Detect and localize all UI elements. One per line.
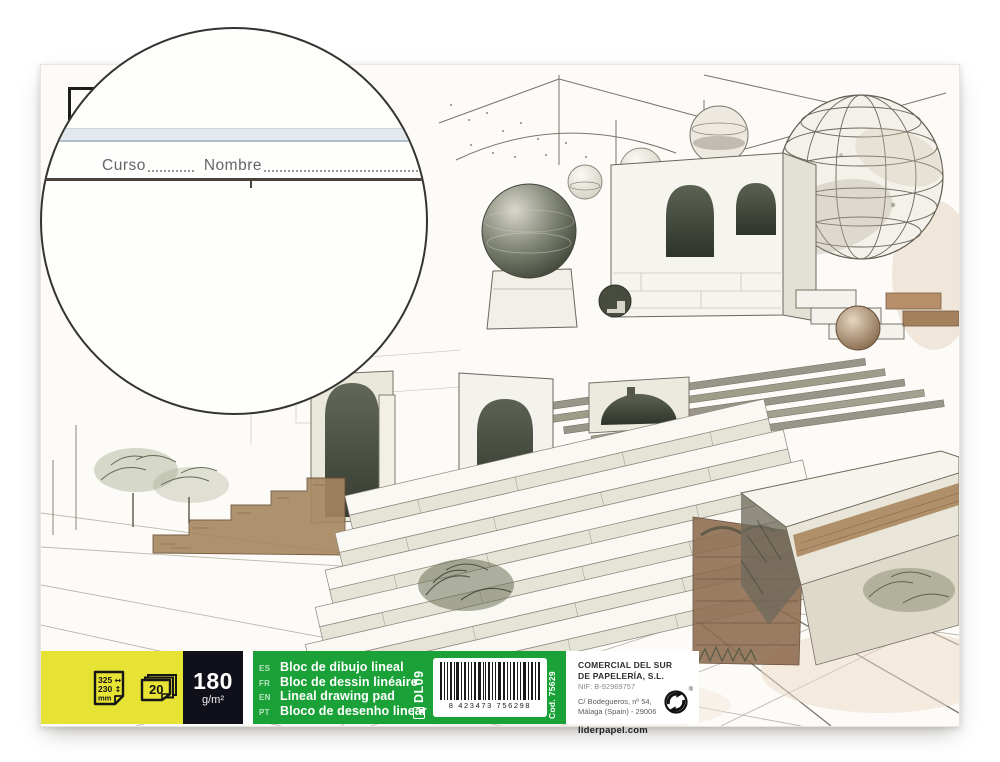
language-label: Bloc de dessin linéaire	[280, 675, 418, 689]
svg-text:20: 20	[149, 682, 163, 697]
language-row-es: ES Bloc de dibujo lineal	[259, 660, 427, 674]
center-bush	[418, 559, 514, 611]
product-code: Cod. 75629	[547, 655, 557, 719]
barcode: 8 423473 756298	[433, 658, 547, 717]
banner-divider	[243, 651, 253, 724]
spec-banner: 325 ↔ 230 ↕ mm 20 180 g/m²	[41, 651, 699, 724]
language-row-en: EN Lineal drawing pad	[259, 689, 427, 703]
magnifier-circle: Curso Nombre	[40, 27, 428, 415]
page-size-icon: 325 ↔ 230 ↕ mm	[87, 666, 131, 710]
banner-weight-section: 180 g/m²	[183, 651, 243, 724]
barcode-digits: 8 423473 756298	[449, 701, 531, 710]
paper-weight-unit: g/m²	[202, 695, 224, 706]
name-fields-row: Curso Nombre	[102, 157, 426, 175]
nombre-dotted-line	[264, 169, 426, 172]
language-label: Bloc de dibujo lineal	[280, 660, 404, 674]
svg-text:↔: ↔	[115, 676, 122, 685]
company-panel: COMERCIAL DEL SUR DE PAPELERÍA, S.L. NIF…	[566, 651, 699, 724]
product-photo: 325 ↔ 230 ↕ mm 20 180 g/m²	[0, 0, 1000, 762]
writing-rule-line	[42, 178, 426, 181]
curso-dotted-line	[148, 169, 194, 172]
language-row-pt: PT Bloco de desenho linear	[259, 704, 427, 718]
company-website: liderpapel.com	[578, 725, 693, 736]
language-row-fr: FR Bloc de dessin linéaire	[259, 675, 427, 689]
language-code: PT	[259, 708, 280, 717]
language-code: ES	[259, 664, 280, 673]
banner-green-section: ES Bloc de dibujo lineal FR Bloc de dess…	[253, 651, 566, 724]
document-icon	[413, 707, 425, 719]
dark-sphere	[482, 184, 577, 329]
reference-code-text: DL09	[412, 670, 426, 703]
right-shrub	[863, 568, 955, 612]
svg-text:↕: ↕	[115, 685, 122, 694]
language-code: FR	[259, 679, 280, 688]
green-dot-recycling-icon: ®	[663, 689, 693, 715]
header-band	[42, 128, 426, 142]
arched-building	[599, 153, 816, 321]
barcode-bars	[440, 662, 540, 700]
language-label: Lineal drawing pad	[280, 689, 395, 703]
paper-weight-value: 180	[193, 670, 233, 693]
rule-tick-mark	[250, 181, 252, 188]
banner-yellow-section: 325 ↔ 230 ↕ mm 20	[41, 651, 183, 724]
curso-label: Curso	[102, 157, 146, 175]
language-code: EN	[259, 693, 280, 702]
language-list: ES Bloc de dibujo lineal FR Bloc de dess…	[259, 660, 427, 718]
nombre-label: Nombre	[204, 157, 262, 175]
language-label: Bloco de desenho linear	[280, 704, 427, 718]
company-name-line2: DE PAPELERÍA, S.L.	[578, 671, 693, 682]
svg-text:mm: mm	[98, 693, 112, 702]
svg-text:230: 230	[98, 684, 112, 694]
reference-code: DL09	[412, 655, 426, 719]
registered-mark: ®	[689, 687, 693, 693]
company-name-line1: COMERCIAL DEL SUR	[578, 660, 693, 671]
sheet-count-icon: 20	[136, 666, 180, 710]
